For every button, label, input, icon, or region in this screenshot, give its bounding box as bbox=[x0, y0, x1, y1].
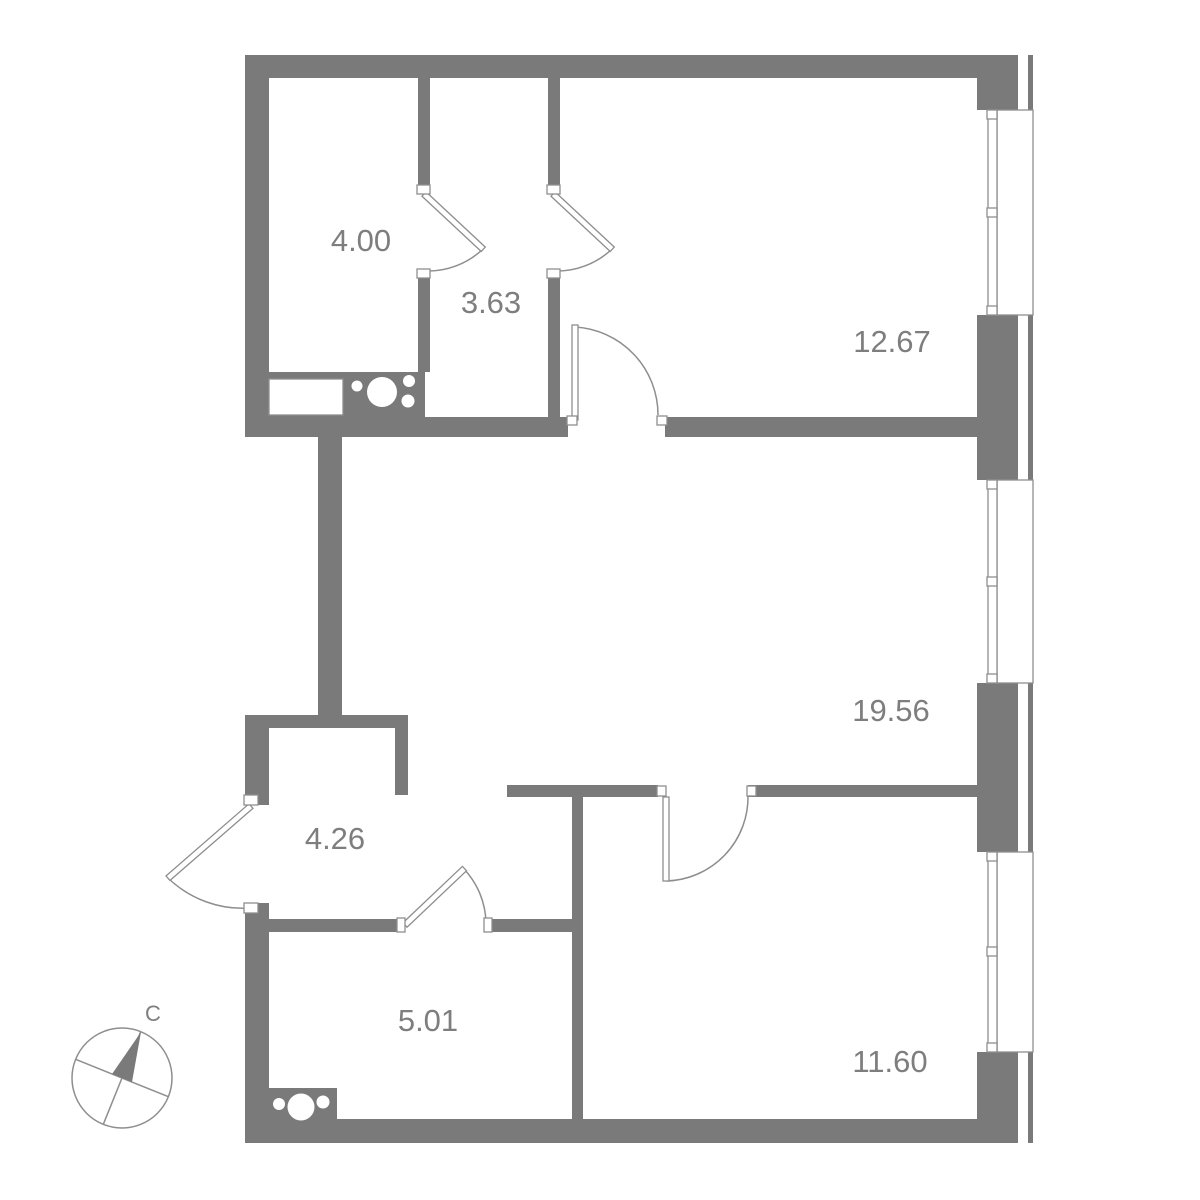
door-jamb bbox=[397, 918, 405, 932]
kitchen-burner-1 bbox=[403, 375, 415, 387]
window-mullion bbox=[987, 208, 997, 217]
wall-outer-bottom bbox=[245, 1119, 1000, 1143]
door-jamb bbox=[417, 185, 430, 194]
wall-horizontal-mid-right bbox=[665, 417, 977, 437]
wall-outer-left-top bbox=[245, 55, 269, 437]
wall-hallway-bottom-left bbox=[269, 919, 405, 932]
window-mullion bbox=[987, 306, 997, 315]
windows bbox=[987, 110, 1033, 1052]
door-bathroom bbox=[397, 866, 492, 932]
wall-hall-bedroom-upper bbox=[548, 78, 560, 185]
door-swing-arc bbox=[464, 869, 486, 923]
door-swing-arc bbox=[666, 795, 748, 881]
bath-fixture-left bbox=[273, 1098, 285, 1110]
wall-right-pier-1 bbox=[977, 315, 1018, 480]
window-mullion bbox=[987, 852, 997, 861]
door-jamb bbox=[547, 185, 560, 194]
wall-outer-left-bottom bbox=[245, 903, 269, 1143]
floor-plan-canvas: С 4.00 3.63 12.67 19.56 4.26 5.01 11.60 bbox=[0, 0, 1200, 1200]
kitchen-faucet bbox=[352, 381, 363, 392]
door-jamb bbox=[567, 416, 577, 425]
window-sill bbox=[997, 110, 1033, 315]
door-swing-arc bbox=[575, 327, 658, 415]
walls bbox=[245, 55, 1033, 1143]
door-swing-arc bbox=[554, 249, 612, 271]
door-leaf bbox=[403, 866, 467, 927]
door-leaf bbox=[572, 325, 578, 420]
label-room-top-left: 4.00 bbox=[331, 223, 391, 258]
door-jamb bbox=[244, 903, 258, 913]
door-top-middle bbox=[547, 185, 614, 278]
wall-right-corner bbox=[977, 55, 1018, 110]
wall-bath-bedroom bbox=[572, 797, 583, 1119]
label-room-bottom-right: 11.60 bbox=[852, 1044, 927, 1079]
door-top-left bbox=[417, 185, 485, 278]
window-mullion bbox=[987, 1043, 997, 1052]
wall-kitchen-hall-upper bbox=[418, 78, 430, 185]
window-sill bbox=[997, 480, 1033, 683]
door-leaf bbox=[551, 192, 614, 252]
label-room-living: 19.56 bbox=[852, 693, 930, 728]
wall-right-pier-3 bbox=[977, 1052, 1018, 1143]
kitchen-burner-2 bbox=[402, 395, 415, 408]
wall-outer-left-mid bbox=[245, 715, 269, 805]
door-jamb bbox=[747, 786, 756, 796]
label-room-top-right: 12.67 bbox=[853, 324, 931, 359]
door-swing-arc bbox=[425, 249, 483, 271]
door-jamb bbox=[657, 416, 667, 425]
window-mullion bbox=[987, 947, 997, 956]
wall-living-separator-left bbox=[507, 785, 658, 797]
wall-right-pier-2 bbox=[977, 683, 1018, 852]
window-mullion bbox=[987, 577, 997, 586]
compass-north-label: С bbox=[145, 1001, 161, 1026]
window-top bbox=[987, 110, 1033, 315]
door-swing-arc bbox=[168, 878, 251, 908]
floor-plan-drawing: С 4.00 3.63 12.67 19.56 4.26 5.01 11.60 bbox=[0, 0, 1200, 1200]
door-bedroom-bottom bbox=[657, 786, 756, 881]
door-jamb bbox=[547, 269, 560, 278]
wall-horizontal-mid-left bbox=[245, 417, 568, 437]
wall-kitchen-hall-lower bbox=[418, 269, 430, 372]
door-jamb bbox=[244, 795, 258, 805]
label-room-hallway: 4.26 bbox=[305, 821, 365, 856]
wall-hallway-bottom-right bbox=[485, 919, 572, 932]
wall-central-vertical bbox=[318, 417, 342, 728]
door-leaf bbox=[422, 192, 485, 252]
window-middle bbox=[987, 480, 1033, 683]
wall-niche-top bbox=[245, 715, 408, 728]
door-jamb bbox=[657, 786, 666, 796]
label-room-top-middle: 3.63 bbox=[461, 285, 521, 320]
window-mullion bbox=[987, 480, 997, 489]
wall-living-separator-right bbox=[748, 785, 977, 797]
wall-hall-bedroom-lower bbox=[548, 269, 560, 417]
window-mullion bbox=[987, 110, 997, 119]
wall-outer-top bbox=[245, 55, 1000, 78]
window-sill bbox=[997, 852, 1033, 1052]
door-jamb bbox=[417, 269, 430, 278]
room-labels: 4.00 3.63 12.67 19.56 4.26 5.01 11.60 bbox=[305, 223, 931, 1079]
compass-north-arrow bbox=[112, 1032, 141, 1082]
bath-fixture-right bbox=[317, 1096, 330, 1109]
compass: С bbox=[72, 1001, 172, 1128]
label-room-bathroom: 5.01 bbox=[398, 1003, 458, 1038]
door-jamb bbox=[484, 918, 492, 932]
door-entrance bbox=[166, 795, 258, 913]
door-leaf bbox=[166, 804, 253, 881]
kitchen-cabinet bbox=[269, 379, 343, 415]
kitchen-sink bbox=[367, 377, 397, 407]
door-leaf bbox=[663, 797, 669, 881]
window-bottom bbox=[987, 852, 1033, 1052]
window-mullion bbox=[987, 674, 997, 683]
bath-sink bbox=[288, 1094, 315, 1121]
door-bedroom-top bbox=[567, 325, 667, 425]
wall-niche-right bbox=[395, 728, 408, 795]
